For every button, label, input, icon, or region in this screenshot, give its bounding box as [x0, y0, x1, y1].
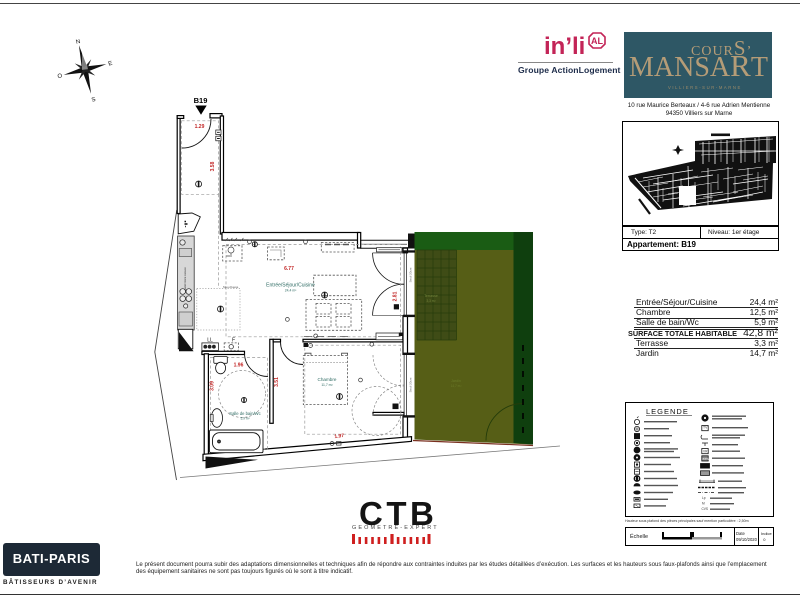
svg-text:14,7 m²: 14,7 m²	[451, 384, 462, 388]
svg-text:11,7 m²: 11,7 m²	[321, 383, 333, 387]
svg-text:LL: LL	[207, 338, 213, 344]
svg-text:Chambre: Chambre	[318, 377, 337, 382]
svg-text:Jardin: Jardin	[451, 379, 461, 383]
svg-text:M: M	[702, 502, 705, 506]
svg-text:F: F	[232, 338, 235, 344]
svg-text:LEGENDE: LEGENDE	[646, 407, 689, 416]
svg-text:3.09: 3.09	[210, 381, 216, 391]
svg-text:1.96: 1.96	[234, 363, 244, 369]
svg-text:2.81: 2.81	[392, 291, 398, 301]
svg-text:BTW: BTW	[703, 457, 710, 461]
svg-text:6.77: 6.77	[284, 266, 294, 272]
svg-text:E: E	[108, 61, 113, 68]
svg-text:Seuil 20cm: Seuil 20cm	[409, 267, 413, 282]
svg-text:VR: VR	[703, 450, 708, 454]
svg-text:3.51: 3.51	[274, 377, 280, 387]
svg-text:Meu.chauss.: Meu.chauss.	[223, 285, 239, 289]
svg-text:TV: TV	[703, 426, 708, 430]
svg-text:Seuil 20cm: Seuil 20cm	[409, 377, 413, 392]
svg-text:O: O	[57, 73, 63, 80]
svg-text:3,3 m²: 3,3 m²	[426, 299, 435, 303]
svg-text:24,4 m²: 24,4 m²	[285, 289, 297, 293]
svg-text:Terrasse: Terrasse	[424, 294, 438, 298]
svg-text:S: S	[91, 97, 96, 104]
svg-text:B19: B19	[194, 96, 208, 105]
svg-text:AL: AL	[591, 36, 603, 46]
svg-text:Lp: Lp	[702, 496, 706, 500]
svg-text:N: N	[75, 39, 81, 46]
svg-text:1.97: 1.97	[334, 433, 345, 440]
svg-text:5,9 m²: 5,9 m²	[240, 417, 249, 421]
svg-text:CVS: CVS	[702, 507, 709, 511]
svg-text:1.29: 1.29	[195, 124, 205, 130]
svg-text:Salle de bain/Wc: Salle de bain/Wc	[229, 411, 260, 416]
svg-text:3.58: 3.58	[210, 161, 216, 171]
